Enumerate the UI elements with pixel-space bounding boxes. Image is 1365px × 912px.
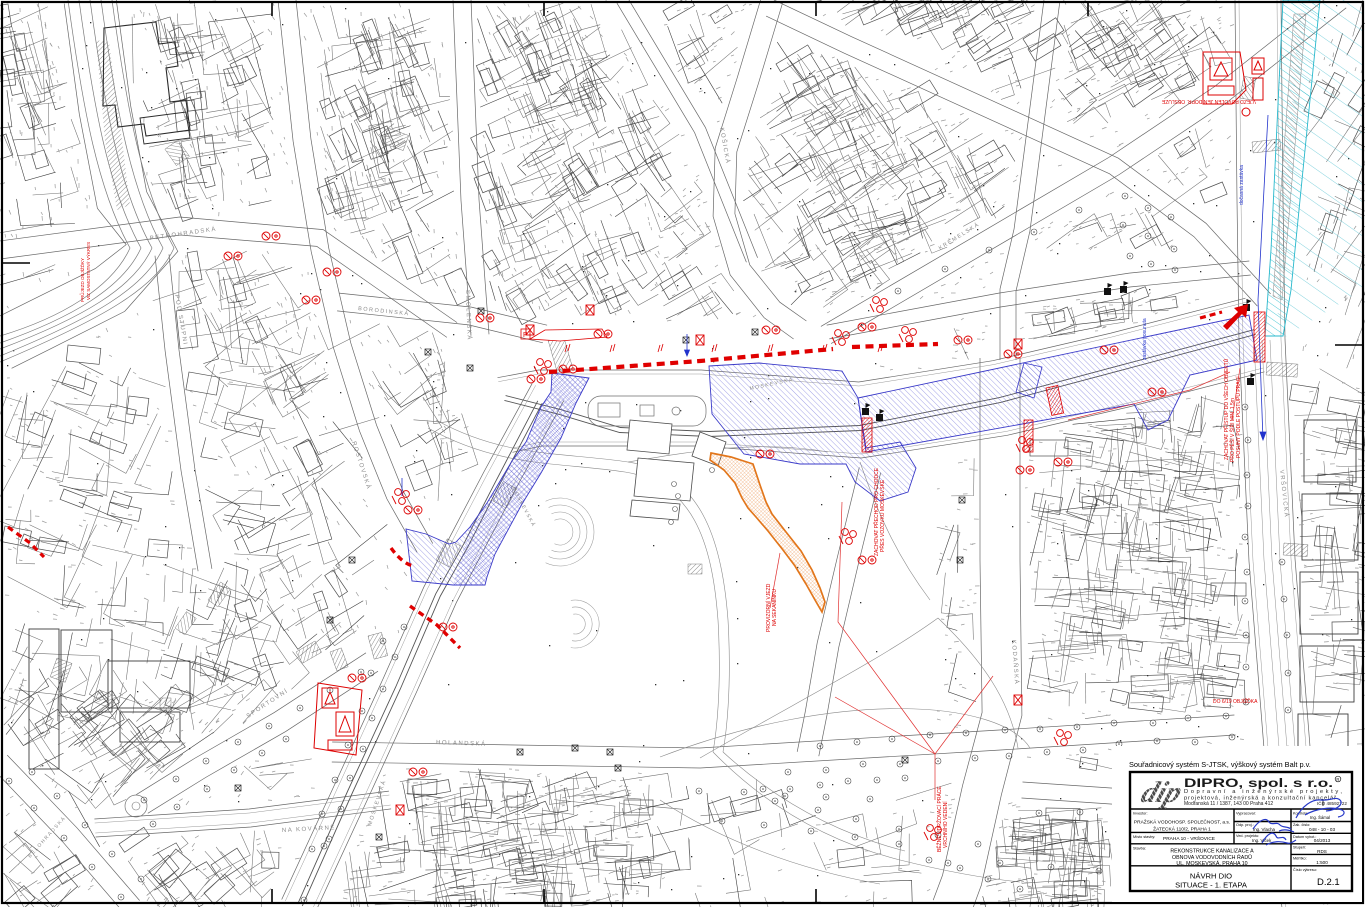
svg-text:DO 6/19 OBJÍŽĎKA: DO 6/19 OBJÍŽĎKA xyxy=(1213,697,1258,705)
svg-text:RDS: RDS xyxy=(1317,849,1327,854)
svg-text:Stupeň:: Stupeň: xyxy=(1293,846,1306,850)
svg-text:BĚŽNÉ UDRŽOVACÍ PRÁCE: BĚŽNÉ UDRŽOVACÍ PRÁCE xyxy=(935,786,943,852)
svg-text:VRCHNÍHO VEDENÍ: VRCHNÍHO VEDENÍ xyxy=(942,801,949,848)
svg-text:PRO PĚŠÍ V ŠÍŘI MIN. 1,5m: PRO PĚŠÍ V ŠÍŘI MIN. 1,5m xyxy=(1228,398,1236,462)
svg-text:PROVIZORNÍ VJEZD: PROVIZORNÍ VJEZD xyxy=(765,583,772,632)
svg-text:NÁVRH DIO: NÁVRH DIO xyxy=(1190,872,1232,881)
svg-text:Modřanská 11 / 1387, 143 00: Modřanská 11 / 1387, 143 00 Praha 412 xyxy=(1184,801,1273,807)
svg-text:Místo stavby:: Místo stavby: xyxy=(1133,835,1155,839)
svg-text:IČO 48592722: IČO 48592722 xyxy=(1317,800,1347,806)
svg-text:REKONSTRUKCE KANALIZACE A: REKONSTRUKCE KANALIZACE A xyxy=(1170,848,1254,854)
svg-text:VJEZD POVOLEN JEN DOPR. OBSLUZ: VJEZD POVOLEN JEN DOPR. OBSLUZE xyxy=(1161,98,1256,104)
svg-text:04/2013: 04/2013 xyxy=(1314,838,1331,843)
svg-text:SITUACE - 1. ETAPA: SITUACE - 1. ETAPA xyxy=(1175,881,1248,890)
svg-text:UL. MOSKEVSKÁ, PRAHA 10: UL. MOSKEVSKÁ, PRAHA 10 xyxy=(1176,860,1247,867)
svg-text:VIZ SAMOSTATNÝ VÝKRES: VIZ SAMOSTATNÝ VÝKRES xyxy=(85,242,91,300)
svg-text:Investor:: Investor: xyxy=(1133,812,1148,816)
svg-text:NA SEKANINKU: NA SEKANINKU xyxy=(772,589,778,626)
svg-text:ZACHOVAT PŘÍSTUP DO VŠECH OBJE: ZACHOVAT PŘÍSTUP DO VŠECH OBJEKTŮ xyxy=(1222,358,1230,460)
svg-text:OBNOVA VODOVODNÍCH ŘADŮ: OBNOVA VODOVODNÍCH ŘADŮ xyxy=(1172,853,1252,861)
svg-text:Ing. Šámal: Ing. Šámal xyxy=(1310,815,1330,820)
svg-text:Měřítko:: Měřítko: xyxy=(1293,857,1307,861)
svg-text:R: R xyxy=(1336,777,1339,782)
svg-text:1:500: 1:500 xyxy=(1316,860,1328,865)
svg-text:POSUNY PODLE POSTUPU PRACÍ: POSUNY PODLE POSTUPU PRACÍ xyxy=(1235,376,1242,458)
svg-text:Souřadnicový systém S-JTSK, vý: Souřadnicový systém S-JTSK, výškový syst… xyxy=(1129,760,1311,769)
svg-text:Zak. číslo:: Zak. číslo: xyxy=(1293,823,1310,827)
svg-text:dočasná zastávka: dočasná zastávka xyxy=(1239,165,1245,205)
svg-text:048 - 10 - 03: 048 - 10 - 03 xyxy=(1309,827,1335,832)
svg-text:PŘES VOZOVKU MOSKEVSKÉ: PŘES VOZOVKU MOSKEVSKÉ xyxy=(878,479,886,552)
svg-text:Vypracoval:: Vypracoval: xyxy=(1236,812,1256,816)
svg-text:Stavba:: Stavba: xyxy=(1133,847,1146,851)
svg-text:DIPRO, spol. s r.o.: DIPRO, spol. s r.o. xyxy=(1184,776,1333,790)
svg-text:Odp. proj.:: Odp. proj.: xyxy=(1236,823,1254,827)
svg-text:PRŮJEZD OBJÍŽĎKY: PRŮJEZD OBJÍŽĎKY xyxy=(78,258,85,302)
svg-text:ZACHOVAT PŘECHOD PRO CHODCE: ZACHOVAT PŘECHOD PRO CHODCE xyxy=(872,467,880,556)
svg-text:Ing. Vlacha: Ing. Vlacha xyxy=(1253,827,1276,832)
svg-text:zastávka posunuta: zastávka posunuta xyxy=(1142,318,1148,360)
svg-text:Číslo výkresu:: Číslo výkresu: xyxy=(1293,867,1317,872)
svg-text:D.2.1: D.2.1 xyxy=(1317,877,1340,888)
svg-text:PRAHA 10 - VRŠOVICE: PRAHA 10 - VRŠOVICE xyxy=(1163,835,1215,842)
